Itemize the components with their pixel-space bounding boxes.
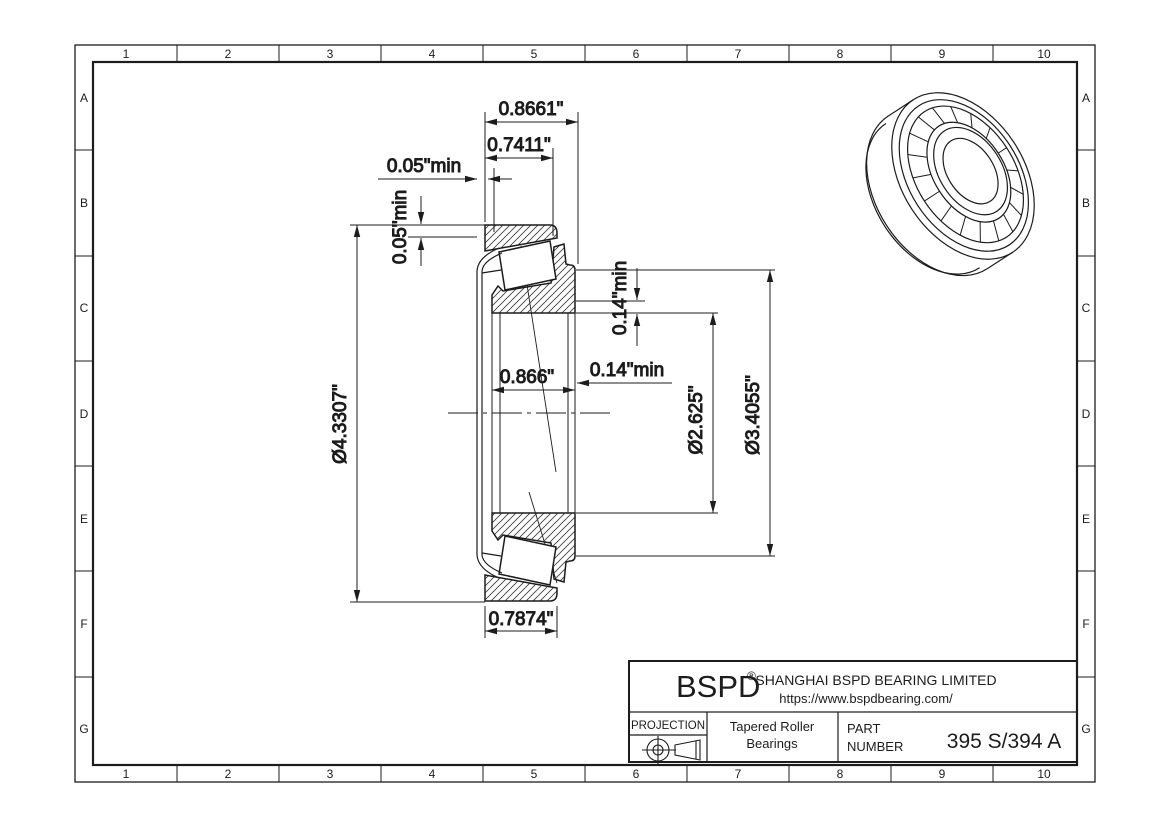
column-label: 3 [327,47,334,61]
column-label: 7 [735,767,742,781]
dim-label: 0.866" [500,367,554,388]
column-label: 7 [735,47,742,61]
row-label: C [80,301,89,315]
company-name: SHANGHAI BSPD BEARING LIMITED [755,672,996,688]
product-type-line1: Tapered Roller [730,719,815,734]
dim-label: 0.14"min [590,360,664,381]
row-label: E [1082,512,1090,526]
dim-label: 0.8661" [499,99,564,120]
column-label: 2 [225,767,232,781]
row-label: D [1082,407,1091,421]
projection-label: PROJECTION [631,720,705,732]
column-label: 5 [531,767,538,781]
row-label: B [80,196,88,210]
row-label: F [80,617,87,631]
dim-label: 0.05"min [387,156,461,177]
row-label: B [1082,196,1090,210]
column-label: 9 [939,767,946,781]
column-label: 10 [1037,767,1051,781]
part-number-label-line2: NUMBER [847,739,903,754]
column-label: 1 [123,47,130,61]
row-label: E [80,512,88,526]
row-label: F [1082,617,1089,631]
dim-label: 0.14"min [610,261,631,335]
part-number-value: 395 S/394 A [947,730,1061,753]
row-label: G [79,722,88,736]
part-number-label-line1: PART [847,721,881,736]
row-label: A [80,91,88,105]
row-label: C [1082,301,1091,315]
column-label: 8 [837,47,844,61]
engineering-drawing-sheet: 1 2 3 4 5 6 7 8 9 10 1 2 3 4 5 6 7 8 9 1… [0,0,1170,827]
column-label: 5 [531,47,538,61]
dim-label: Ø2.625" [686,385,707,454]
dim-label: 0.7411" [487,135,550,156]
dim-label: Ø4.3307" [330,384,351,464]
row-label: A [1082,91,1090,105]
column-label: 6 [633,767,640,781]
column-label: 4 [429,47,436,61]
dim-label: 0.05"min [390,190,411,264]
column-label: 8 [837,767,844,781]
dim-shoulder-axial: 0.14"min [577,360,672,383]
row-label: G [1081,722,1090,736]
column-label: 10 [1037,47,1051,61]
column-label: 1 [123,767,130,781]
column-label: 2 [225,47,232,61]
website-url: https://www.bspdbearing.com/ [779,691,953,706]
dim-label: Ø3.4055" [743,375,764,455]
column-label: 6 [633,47,640,61]
product-type-line2: Bearings [746,736,798,751]
column-label: 4 [429,767,436,781]
column-label: 3 [327,767,334,781]
row-label: D [80,407,89,421]
column-label: 9 [939,47,946,61]
dim-label: 0.7874" [489,609,554,630]
